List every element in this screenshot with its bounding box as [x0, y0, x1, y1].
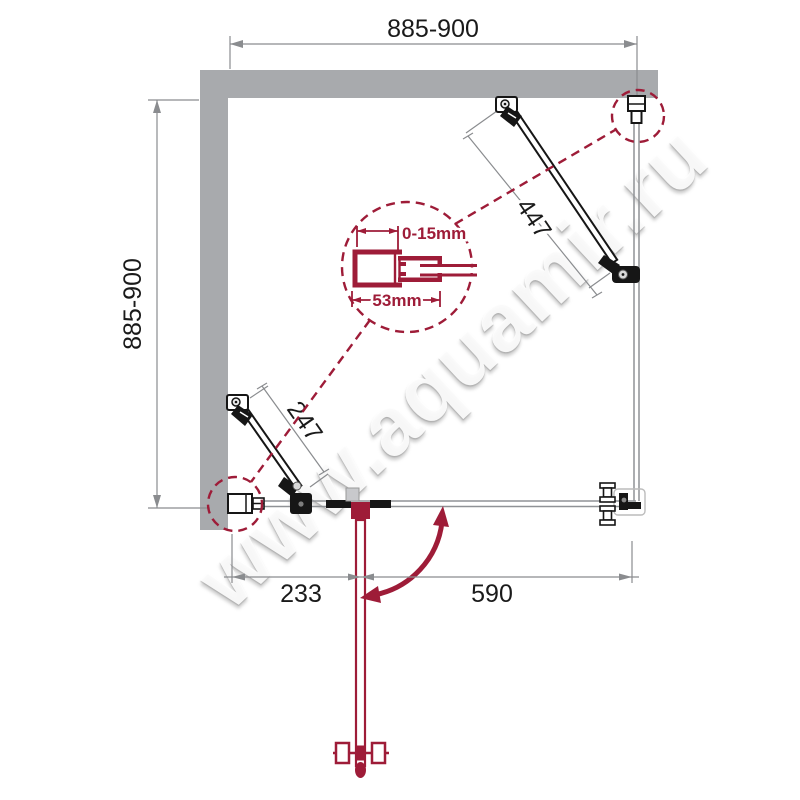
door-hinge [351, 502, 370, 519]
dimension-label-247: 247 [281, 396, 328, 446]
profile-tooth [399, 262, 406, 266]
knob-waist [604, 511, 612, 520]
wall-profile-top-right [628, 96, 645, 123]
dimension-left-height: 885-900 [119, 100, 210, 508]
door-glass [356, 520, 365, 766]
dimension-label-left: 885-900 [119, 258, 147, 350]
profile-right-bar [438, 256, 443, 265]
shower-enclosure-technical-drawing: 885-900 885-900 [0, 0, 800, 800]
glass-connector-knobs [600, 483, 615, 525]
bracket-pivot [622, 498, 627, 503]
knob-flange [600, 520, 615, 525]
glass-gap [420, 268, 477, 274]
support-bar-447: 447 [463, 97, 640, 298]
swing-arc [374, 522, 442, 595]
fixed-panel-right [634, 124, 639, 501]
dimension-label-top: 885-900 [387, 15, 479, 43]
arrowhead [619, 574, 632, 581]
end-tick [592, 292, 602, 298]
end-tick [463, 133, 473, 139]
top-wall [200, 70, 658, 98]
bar-body [512, 112, 617, 263]
hinge-clamp [346, 488, 359, 501]
profile-clamp [632, 111, 642, 123]
adjustment-profile-detail: 0-15mm 53mm [352, 224, 477, 310]
extension-line [589, 273, 610, 288]
arrowhead-bottom [153, 495, 161, 508]
dimension-bottom: 233 590 [224, 534, 639, 608]
arrowhead [431, 297, 440, 303]
pivot-dot [504, 103, 507, 106]
extension-line [310, 474, 328, 487]
door-handle [372, 743, 385, 763]
arrowhead [389, 228, 398, 234]
corner-bracket-bottom-right [614, 489, 645, 515]
hinge-rail [370, 500, 391, 508]
swing-door-open [333, 502, 389, 778]
profile-top-bar [398, 256, 442, 261]
arrowhead [232, 574, 245, 581]
dimension-label-590: 590 [471, 580, 513, 608]
knob-waist [604, 488, 612, 497]
extension-line [466, 111, 497, 133]
profile-bottom-bar [398, 278, 442, 283]
wall-profile-bottom-left [228, 494, 264, 513]
arrowhead-left [230, 40, 243, 48]
profile-body [228, 494, 252, 513]
arrowhead [357, 228, 366, 234]
dimension-label-233: 233 [280, 580, 322, 608]
door-handle [336, 743, 349, 763]
detail-label-adjustment: 0-15mm [402, 224, 466, 243]
arrowhead-right [624, 40, 637, 48]
handle-mount [357, 746, 365, 761]
pivot-dot [298, 501, 303, 506]
knob-flange [600, 497, 615, 502]
bracket-pivot [293, 482, 301, 490]
detail-label-width: 53mm [372, 291, 421, 310]
door-swing-arrow [360, 506, 449, 603]
pivot-dot [235, 401, 238, 404]
profile-tooth [399, 272, 406, 276]
arrowhead-top [153, 100, 161, 113]
door-bottom-tip [355, 762, 366, 778]
leader-line-bottom-left [251, 320, 370, 482]
detail-callouts [208, 90, 664, 531]
bracket-arm [619, 502, 641, 509]
pivot-dot [622, 273, 625, 276]
left-wall [200, 70, 228, 530]
arrowhead-up [433, 506, 449, 527]
